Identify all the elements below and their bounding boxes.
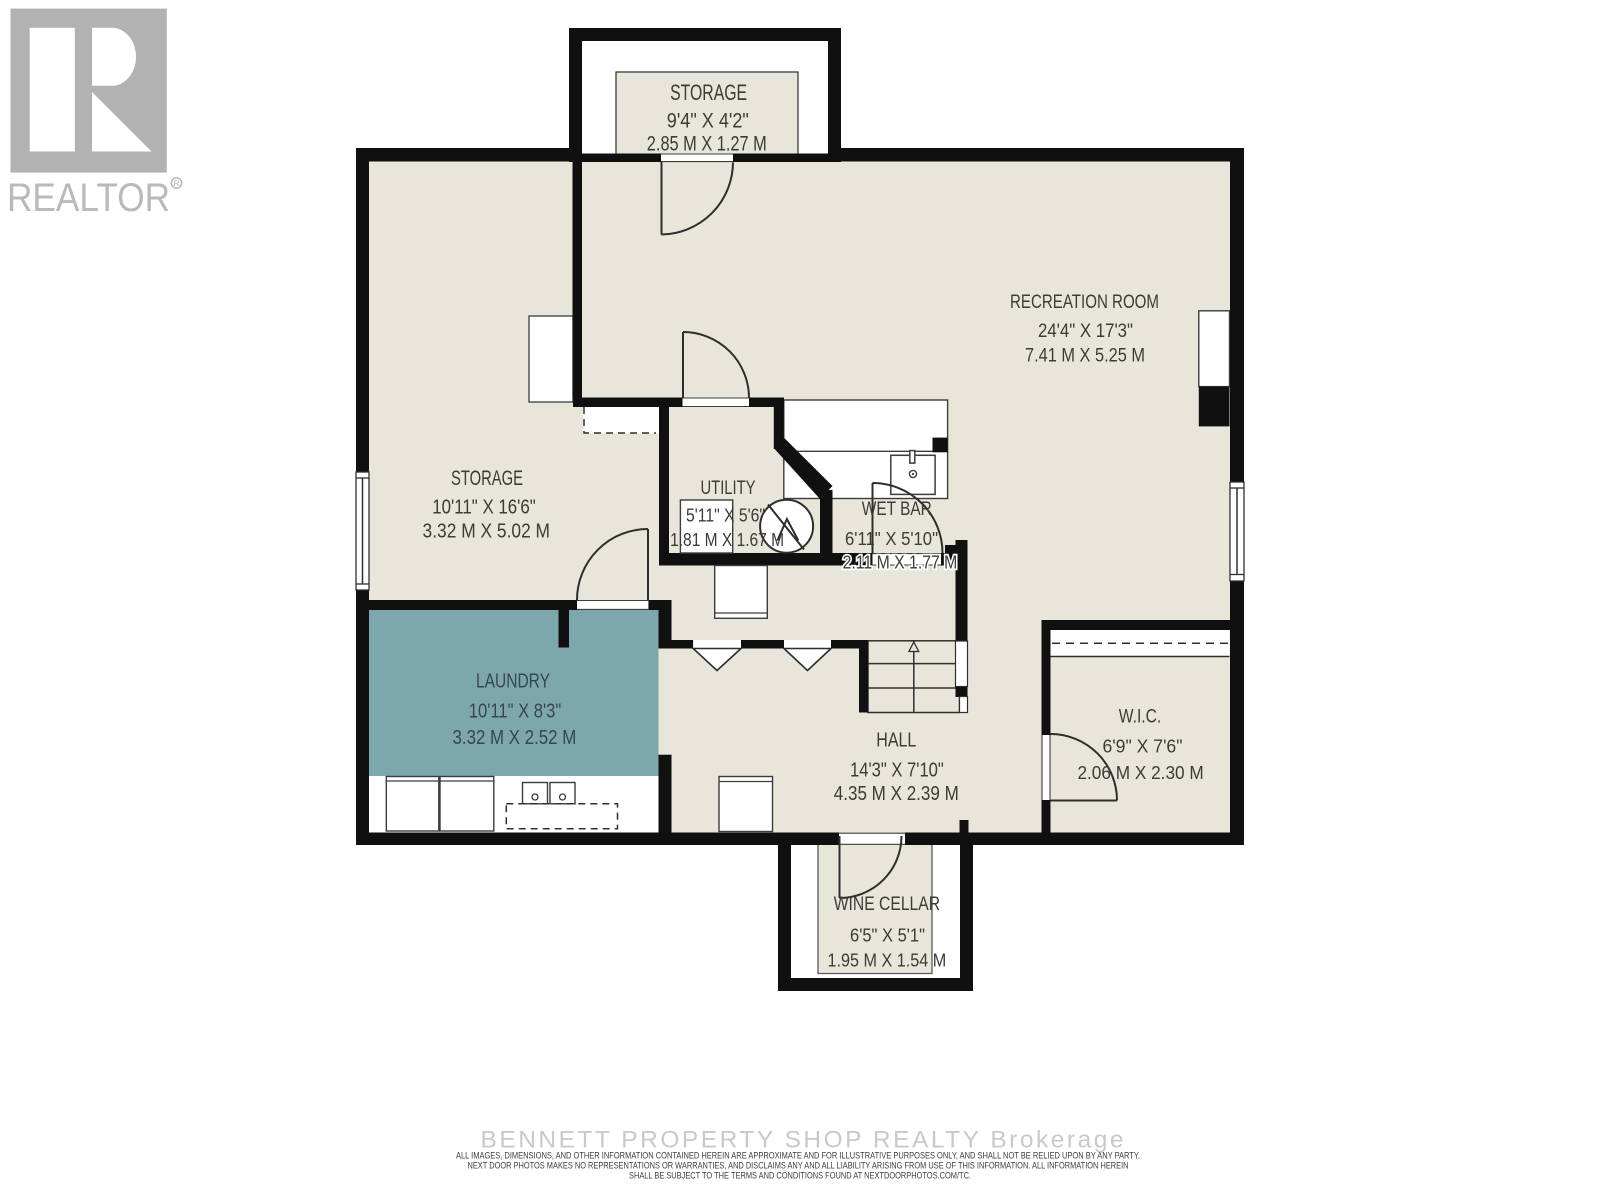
svg-text:STORAGE: STORAGE xyxy=(670,80,747,105)
svg-text:6'11" X 5'10": 6'11" X 5'10" xyxy=(845,529,938,549)
svg-text:SHALL BE SUBJECT TO THE TERMS: SHALL BE SUBJECT TO THE TERMS AND CONDIT… xyxy=(629,1171,971,1182)
svg-text:WET BAR: WET BAR xyxy=(862,499,932,520)
svg-text:2.85 M X 1.27 M: 2.85 M X 1.27 M xyxy=(647,133,767,156)
svg-text:10'11" X 16'6": 10'11" X 16'6" xyxy=(432,496,536,519)
svg-text:LAUNDRY: LAUNDRY xyxy=(476,670,550,693)
svg-text:R: R xyxy=(174,179,180,188)
svg-text:RECREATION ROOM: RECREATION ROOM xyxy=(1010,291,1159,313)
svg-text:10'11" X 8'3": 10'11" X 8'3" xyxy=(469,701,562,723)
svg-text:14'3" X 7'10": 14'3" X 7'10" xyxy=(850,759,944,781)
svg-text:2.06 M X 2.30 M: 2.06 M X 2.30 M xyxy=(1077,762,1203,783)
svg-text:24'4" X 17'3": 24'4" X 17'3" xyxy=(1038,321,1133,342)
svg-text:3.32 M X 5.02 M: 3.32 M X 5.02 M xyxy=(423,520,551,543)
svg-text:STORAGE: STORAGE xyxy=(451,466,523,490)
svg-text:1.95 M X 1.54 M: 1.95 M X 1.54 M xyxy=(828,949,947,970)
svg-text:2.11 M X 1.77 M: 2.11 M X 1.77 M xyxy=(843,553,958,573)
svg-text:WINE CELLAR: WINE CELLAR xyxy=(834,894,940,915)
svg-text:4.35 M X 2.39 M: 4.35 M X 2.39 M xyxy=(834,783,959,805)
svg-text:1.81 M X 1.67 M: 1.81 M X 1.67 M xyxy=(670,530,784,550)
svg-text:UTILITY: UTILITY xyxy=(701,478,756,499)
svg-text:6'9" X 7'6": 6'9" X 7'6" xyxy=(1103,736,1183,757)
svg-text:5'11" X 5'6": 5'11" X 5'6" xyxy=(686,505,765,525)
svg-text:W.I.C.: W.I.C. xyxy=(1119,707,1162,728)
svg-text:6'5" X 5'1": 6'5" X 5'1" xyxy=(850,924,925,945)
svg-text:REALTOR: REALTOR xyxy=(7,176,170,220)
svg-text:3.32 M X 2.52 M: 3.32 M X 2.52 M xyxy=(453,727,577,749)
svg-text:7.41 M X 5.25 M: 7.41 M X 5.25 M xyxy=(1025,345,1145,366)
svg-text:9'4" X 4'2": 9'4" X 4'2" xyxy=(667,110,749,133)
svg-text:HALL: HALL xyxy=(876,728,916,751)
